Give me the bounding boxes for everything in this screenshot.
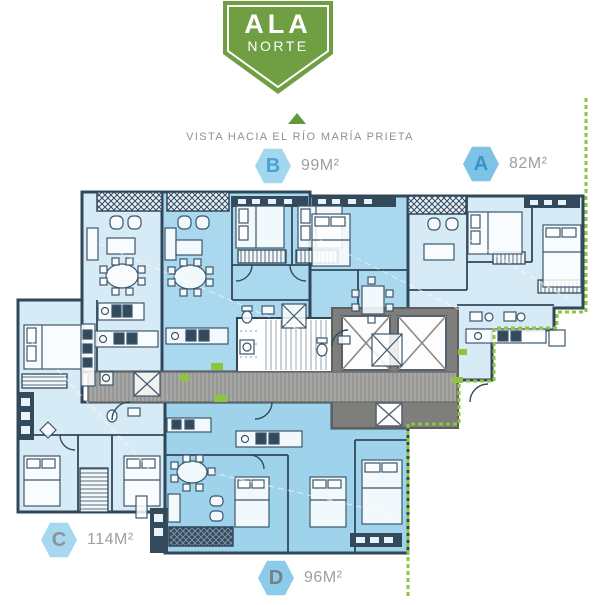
badge-subtitle: NORTE [222,38,334,54]
unit-label-b: B 99M² [255,148,339,184]
unit-hexagon-d: D [258,560,294,596]
unit-area-c: 114M² [87,531,134,549]
unit-letter-a: A [474,153,488,176]
river-view-label: VISTA HACIA EL RÍO MARÍA PRIETA [0,131,600,143]
unit-letter-d: D [269,567,283,590]
unit-label-c: C 114M² [41,522,134,558]
unit-label-d: D 96M² [258,560,342,596]
unit-letter-c: C [52,529,66,552]
unit-area-a: 82M² [509,155,547,173]
badge-text: ALA NORTE [222,10,334,54]
unit-hexagon-c: C [41,522,77,558]
north-arrow-icon [288,113,306,124]
unit-label-a: A 82M² [463,146,547,182]
floor-plan-page: ALA NORTE VISTA HACIA EL RÍO MARÍA PRIET… [0,0,600,605]
unit-hexagon-b: B [255,148,291,184]
badge-title: ALA [222,10,334,38]
wing-badge: ALA NORTE [222,0,334,96]
unit-letter-b: B [266,155,280,178]
unit-area-b: 99M² [301,157,339,175]
unit-area-d: 96M² [304,569,342,587]
unit-hexagon-a: A [463,146,499,182]
